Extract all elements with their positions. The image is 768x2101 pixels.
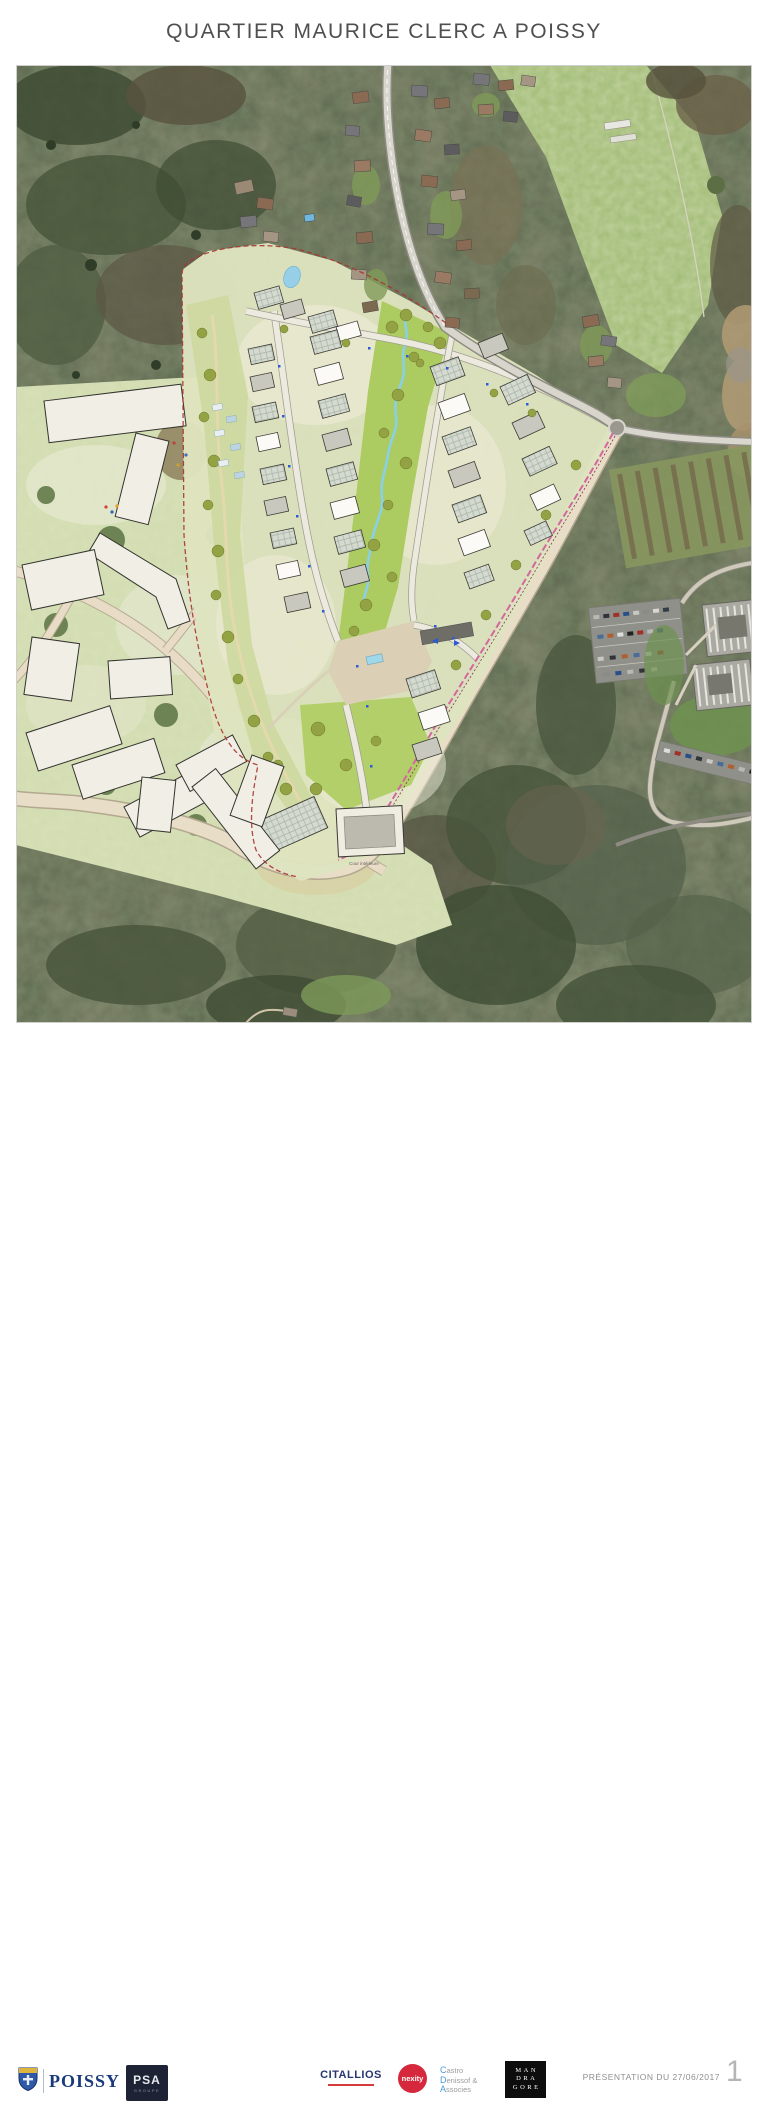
castro-denissof-logo: Castro Denissof & Associes bbox=[440, 2066, 477, 2095]
psa-wordmark: PSA bbox=[133, 2074, 161, 2086]
page-title: QUARTIER MAURICE CLERC A POISSY bbox=[0, 20, 768, 44]
citallios-wordmark: CITALLIOS bbox=[318, 2069, 384, 2081]
mandragore-logo: MAN DRA GORE bbox=[505, 2061, 546, 2098]
castro-line-3: Associes bbox=[440, 2085, 477, 2095]
citallios-tagline-bar bbox=[328, 2084, 374, 2086]
poissy-logo: POISSY bbox=[14, 2065, 124, 2097]
poissy-wordmark: POISSY bbox=[49, 2071, 120, 2092]
mandragore-line-1: MAN bbox=[513, 2067, 538, 2076]
citallios-logo: CITALLIOS bbox=[318, 2069, 384, 2086]
road-junction bbox=[609, 420, 625, 436]
mandragore-line-3: GORE bbox=[510, 2084, 540, 2093]
presentation-date: PRÉSENTATION DU 27/06/2017 bbox=[570, 2072, 720, 2082]
psa-groupe-label: GROUPE bbox=[134, 2088, 160, 2093]
nexity-logo: nexity bbox=[398, 2064, 427, 2093]
mandragore-line-2: DRA bbox=[514, 2075, 538, 2084]
poissy-divider bbox=[43, 2069, 44, 2093]
poissy-crest-icon bbox=[18, 2067, 38, 2096]
psa-logo: PSA GROUPE bbox=[126, 2065, 168, 2101]
aerial-masterplan-map: Cour intérieure bbox=[16, 65, 752, 1023]
courtyard-label: Cour intérieure bbox=[349, 861, 379, 866]
footer: POISSY PSA GROUPE CITALLIOS nexity Castr… bbox=[0, 1023, 768, 1087]
page-number: 1 bbox=[726, 2055, 743, 2089]
nexity-wordmark: nexity bbox=[402, 2074, 424, 2083]
